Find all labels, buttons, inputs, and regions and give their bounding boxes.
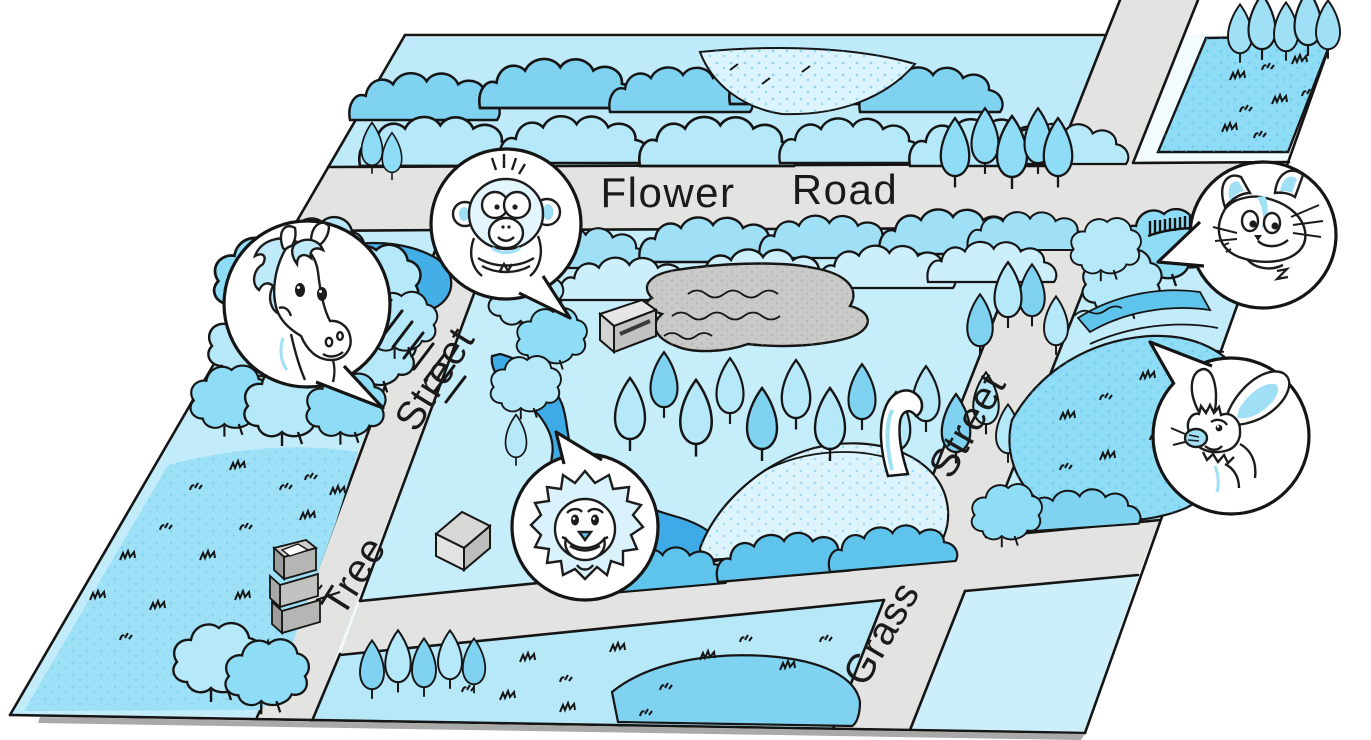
flower-road-label-word-1: Flower (600, 169, 735, 216)
flower-road-label-word-2: Road (792, 166, 898, 213)
tower (270, 540, 320, 633)
rabbit-bubble (1150, 342, 1309, 514)
illustrated-town-map: Flower Road Tree Street Grass Street (0, 0, 1371, 740)
map-canvas: Flower Road Tree Street Grass Street (0, 0, 1371, 740)
